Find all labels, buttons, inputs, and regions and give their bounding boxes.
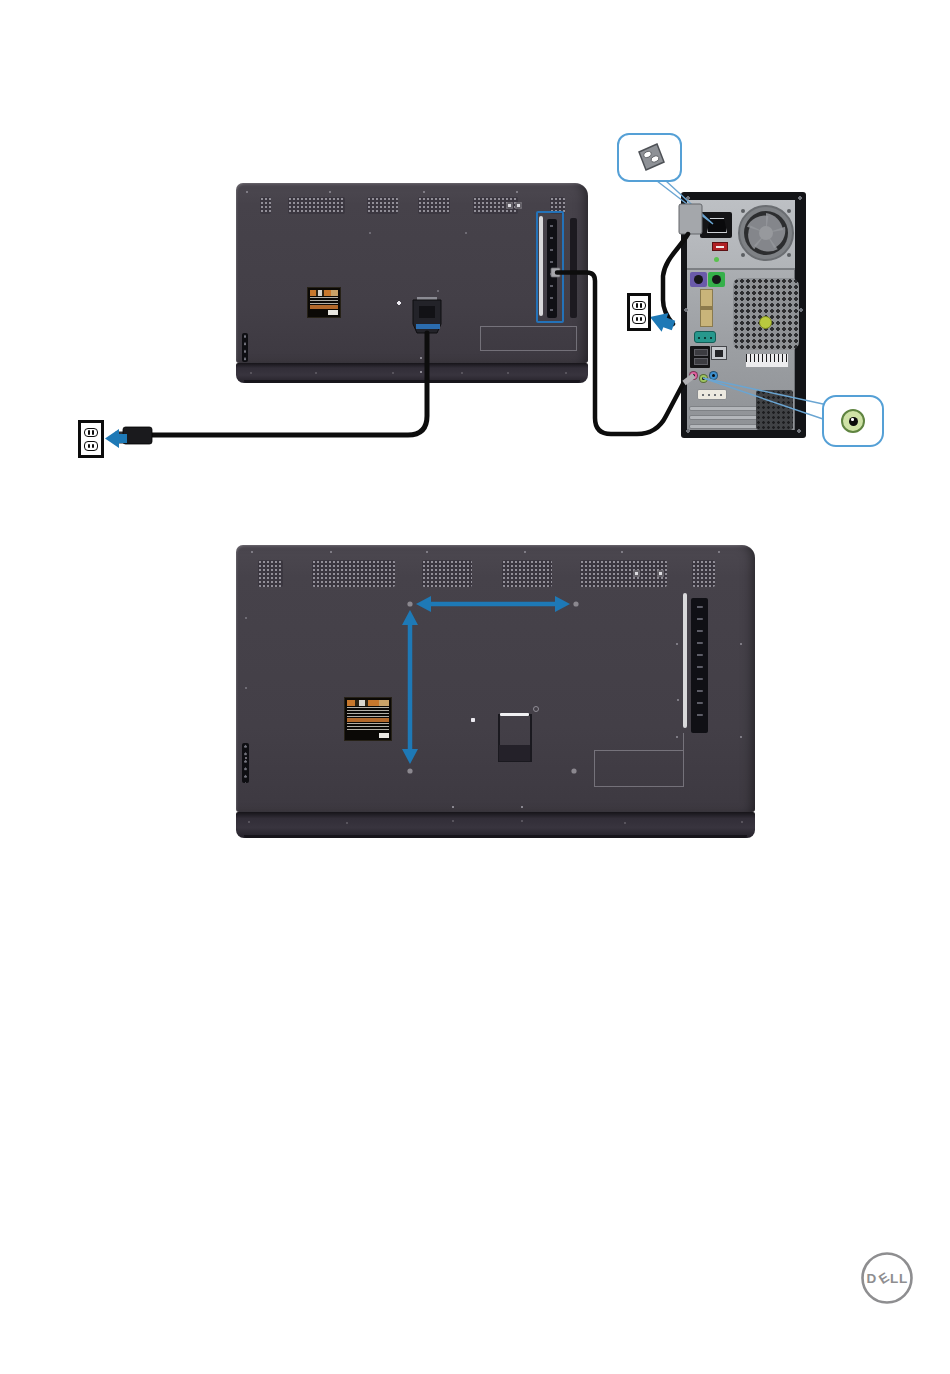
screw	[515, 202, 522, 209]
bracket-top-edge	[500, 713, 529, 716]
dell-logo: D E L L	[859, 1250, 915, 1306]
logo-letter: L	[890, 1271, 898, 1286]
expansion-slot-cover	[700, 289, 713, 327]
round-vent-grille	[733, 278, 799, 350]
side-panel-edge	[683, 593, 687, 728]
power-inlet-socket	[700, 212, 732, 238]
line-in-jack	[709, 371, 718, 380]
label-text-lines	[347, 707, 389, 717]
usb-ports	[690, 346, 710, 368]
vent-grille	[260, 197, 271, 214]
outlet-slot	[636, 317, 638, 322]
outlet-socket	[632, 314, 646, 324]
side-connector-panel	[691, 598, 708, 733]
audio-line-out-callout	[822, 395, 884, 447]
label-orange-band	[347, 718, 389, 722]
panel-seam-outline	[594, 750, 684, 787]
display-bottom-speaker-bar	[236, 363, 588, 383]
screw	[633, 570, 640, 577]
outlet-slot	[88, 430, 90, 435]
label-orange-band	[310, 305, 338, 309]
power-inlet-callout	[617, 133, 682, 182]
line-out-jack	[699, 374, 708, 383]
display-rear-view-connection	[236, 183, 588, 383]
screw	[506, 202, 513, 209]
lower-vent-grille	[756, 390, 793, 430]
outlet-socket	[632, 301, 646, 311]
screw	[657, 570, 664, 577]
regulatory-label	[344, 697, 392, 741]
jack-highlight	[851, 418, 854, 421]
outlet-slot	[92, 430, 94, 435]
vent-grille	[258, 560, 283, 587]
mic-in-jack	[689, 371, 698, 380]
control-button-strip	[242, 743, 249, 783]
power-supply-area	[687, 200, 795, 270]
connector-panel-highlight-box	[536, 211, 564, 323]
vent-grille	[422, 560, 472, 587]
manual-page: D E L L	[0, 0, 950, 1374]
outlet-slot	[92, 444, 94, 449]
outlet-slot	[636, 303, 638, 308]
computer-back-panel	[687, 200, 795, 430]
label-icons-row	[310, 290, 338, 296]
vent-grille	[367, 197, 398, 214]
label-icons-row	[347, 700, 389, 706]
logo-letter: L	[899, 1271, 907, 1286]
power-plug	[116, 427, 153, 444]
vent-grille	[288, 197, 345, 214]
outlet-socket	[84, 441, 98, 451]
display-bottom-speaker-bar	[236, 812, 755, 838]
outlet-socket	[84, 428, 98, 438]
vent-grille	[473, 197, 518, 214]
label-text-lines	[347, 723, 389, 733]
power-outlet-icon	[627, 293, 651, 331]
panel-seam-line	[683, 733, 684, 750]
display-rear-view-vesa	[236, 540, 755, 838]
regulatory-label	[307, 287, 341, 318]
serial-port	[694, 331, 716, 343]
ps2-keyboard-port	[690, 272, 707, 287]
screw	[533, 706, 539, 712]
voltage-selector-switch	[712, 242, 728, 251]
bracket-lower-shade	[499, 745, 530, 761]
plug-direction-arrow	[105, 429, 127, 448]
outlet-slot	[640, 303, 642, 308]
ps2-mouse-port	[708, 272, 725, 287]
panel-seam-outline	[480, 326, 577, 351]
vent-grille	[580, 560, 667, 587]
barcode-label	[745, 353, 789, 368]
dvi-port	[697, 389, 727, 400]
audio-line-out-icon	[841, 409, 865, 433]
psu-fan	[735, 203, 797, 263]
vent-grille	[692, 560, 715, 587]
vent-sticker	[759, 316, 772, 329]
psu-led	[714, 257, 719, 262]
label-white-box	[379, 733, 389, 738]
vent-grille	[418, 197, 450, 214]
power-outlet-icon	[78, 420, 104, 458]
vent-grille	[312, 560, 395, 587]
pc-plug-direction-arrow	[647, 308, 677, 335]
computer-rear-view	[681, 192, 806, 438]
side-handle-recess	[570, 218, 577, 318]
ethernet-port	[711, 346, 727, 360]
logo-letter: D	[867, 1271, 877, 1286]
label-text-lines	[310, 297, 338, 304]
vent-grille	[502, 560, 552, 587]
control-button-strip	[242, 333, 248, 362]
fan-hub	[759, 226, 773, 240]
label-white-box	[328, 310, 338, 315]
power-inlet-icon	[632, 141, 668, 175]
outlet-slot	[640, 317, 642, 322]
outlet-slot	[88, 444, 90, 449]
